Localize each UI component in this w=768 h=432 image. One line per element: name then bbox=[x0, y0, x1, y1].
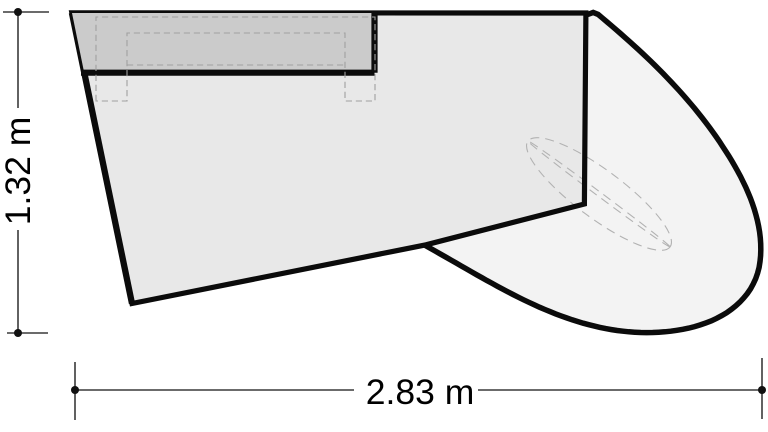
svg-text:2.83 m: 2.83 m bbox=[366, 372, 475, 412]
svg-text:1.32 m: 1.32 m bbox=[0, 117, 38, 226]
